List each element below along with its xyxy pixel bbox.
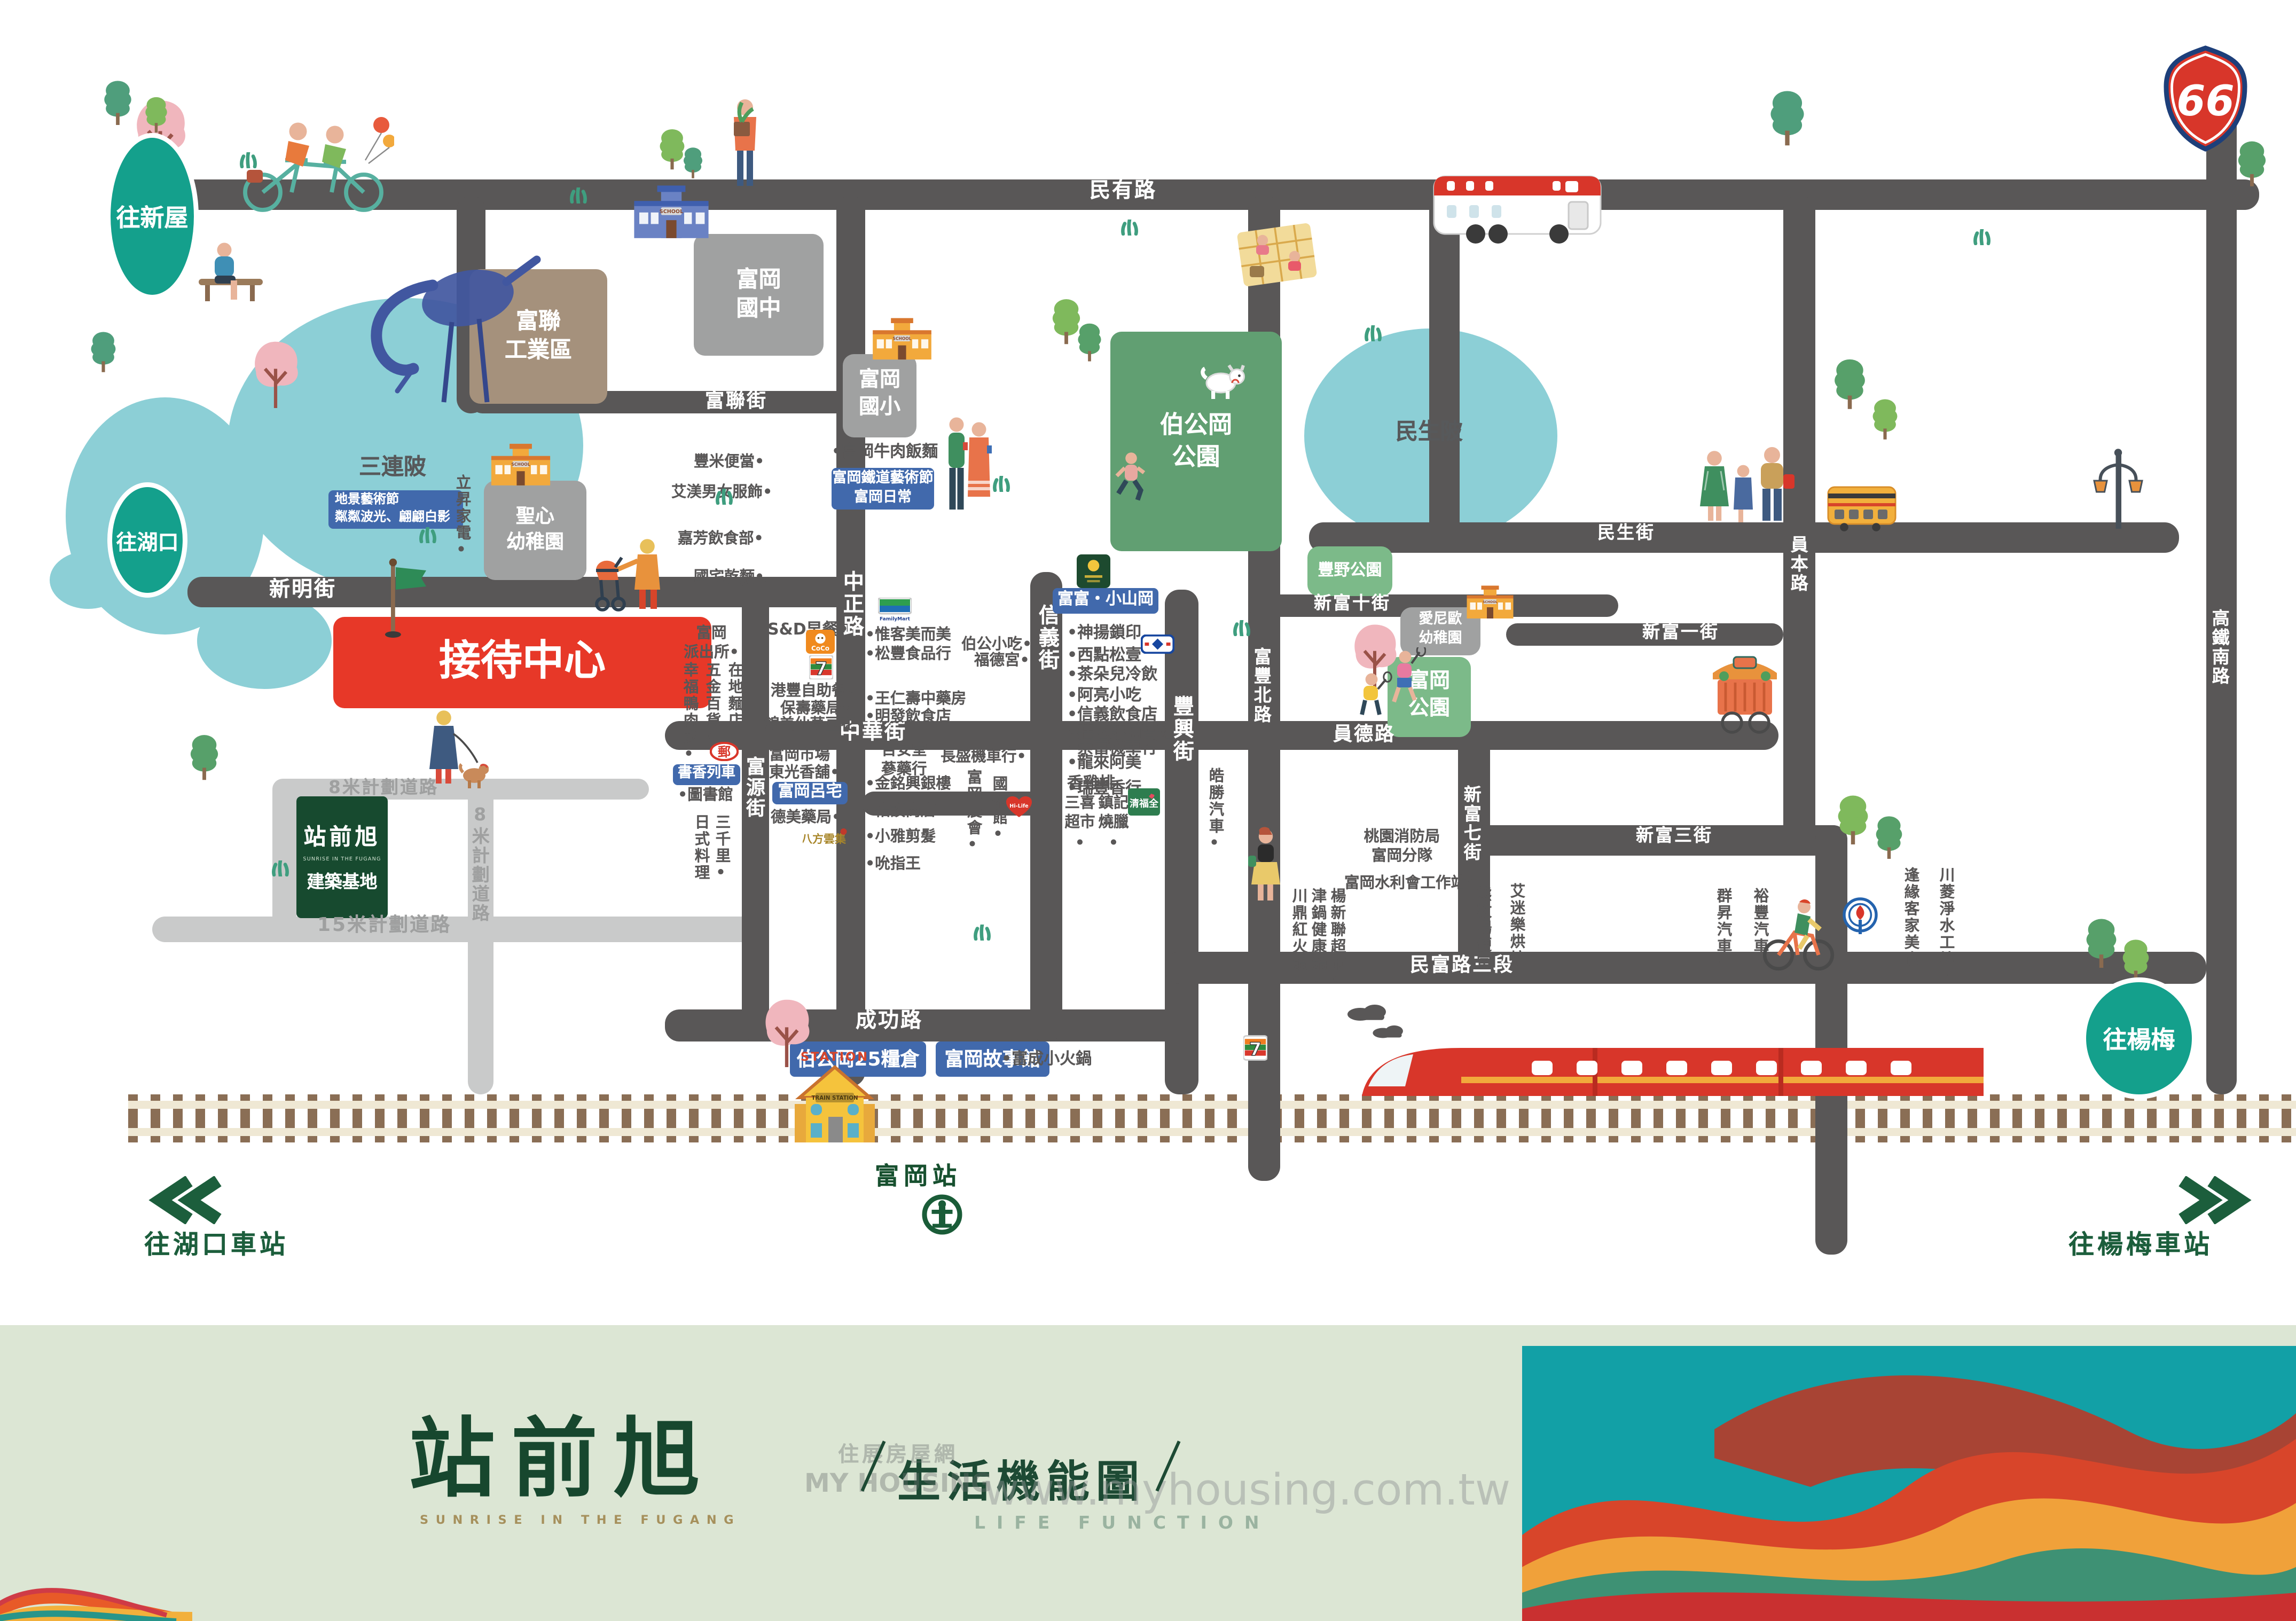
- shop-label: 富岡市場: [769, 747, 830, 766]
- station-building-icon: STATIONTRAIN STATION: [795, 1046, 875, 1149]
- road-gaotienan-rd: [2206, 66, 2237, 1094]
- shop-label: •王仁壽中藥房: [865, 691, 966, 710]
- road-zhongzheng-rd: [836, 195, 865, 1086]
- bench-person-icon: [189, 237, 269, 304]
- picnic-blanket-icon: [1234, 218, 1320, 292]
- area-bogong-park: 伯公岡 公園: [1110, 332, 1282, 551]
- road-minyou-rd: [136, 179, 2259, 210]
- shop-label: 桃園消防局 富岡分隊: [1347, 828, 1456, 868]
- shop-label: 富岡 派出所•: [679, 625, 743, 664]
- school-icon: SCHOOL: [1466, 582, 1514, 620]
- watermark-url: www.myhousing.com.tw: [984, 1466, 1510, 1516]
- area-fugang-junior-high: 富岡 國中: [694, 234, 824, 356]
- grass-tuft-icon: [992, 476, 1011, 492]
- road-label: 新富一街: [1642, 623, 1719, 643]
- hilife-logo: Hi-Life: [1005, 795, 1033, 819]
- grass-tuft-icon: [239, 152, 258, 168]
- shop-label: 群昇汽車•: [1711, 888, 1731, 974]
- road-label: 新富三街: [1636, 827, 1713, 846]
- road-label: 15米計劃道路: [317, 915, 451, 936]
- map-label: 往楊梅車站: [2068, 1231, 2213, 1259]
- watermark-en: MY HOUSING: [804, 1468, 992, 1498]
- road-label: 員德路: [1333, 724, 1396, 746]
- road-label: 員本路: [1788, 535, 1807, 593]
- svg-text:STATION: STATION: [801, 1050, 869, 1064]
- tree-icon: [2237, 130, 2267, 197]
- bafang-logo: 八方雲集: [803, 825, 848, 851]
- shop-label: •金銘興銀樓: [865, 776, 951, 795]
- site-type: 建築基地: [307, 868, 378, 894]
- school-icon: SCHOOL: [633, 179, 710, 240]
- tree-icon: [1769, 90, 1806, 146]
- shop-label: 立昇家電•: [450, 474, 470, 561]
- shop-label: 三喜 超市•: [1062, 795, 1098, 854]
- map-label: 富岡站: [875, 1163, 961, 1190]
- jogger-icon: [1112, 452, 1147, 503]
- tree-icon: [1077, 322, 1102, 362]
- tram-icon: [1825, 484, 1899, 532]
- road-label: 民富路三段: [1410, 955, 1514, 976]
- banner-brand-sub: SUNRISE IN THE FUGANG: [420, 1513, 741, 1527]
- site-sub: SUNRISE IN THE FUGANG: [303, 856, 381, 862]
- shop-label: 國宅乾麵•: [694, 569, 764, 589]
- road-fengxing-st: [1165, 590, 1198, 1094]
- plant-shopper-icon: [724, 96, 763, 192]
- chevrons-right-icon: [2163, 1176, 2256, 1224]
- shop-label: 艾迷樂烘焙•: [1504, 883, 1524, 986]
- familymart-logo: FamilyMart: [878, 598, 912, 622]
- grass-tuft-icon: [1972, 229, 1992, 245]
- road-plan-15m: [152, 917, 758, 942]
- shop-label: 長盛機車行•: [941, 748, 1026, 768]
- banner-wave-graphic: [1522, 1346, 2296, 1621]
- shop-label: 逢緣客家美食•: [1899, 867, 1918, 987]
- shop-label: 港豐自助餐•: [771, 683, 857, 702]
- shop-label: 在地麵店•: [723, 662, 742, 748]
- grass-tuft-icon: [1232, 620, 1251, 636]
- post-office-logo: 郵: [710, 742, 739, 761]
- map-stage: 站前旭 SUNRISE IN THE FUGANG 建築基地 站前旭 SUNRI…: [0, 0, 2296, 1621]
- couple-drinks-icon: [942, 413, 993, 519]
- shop-label: 川鼎紅火鍋•: [1287, 888, 1306, 991]
- water-corp-logo: [1843, 896, 1878, 941]
- svg-text:清福全: 清福全: [1130, 798, 1159, 810]
- map-label: 往湖口車站: [144, 1231, 288, 1259]
- shop-label: •阿亮小吃: [1067, 686, 1141, 707]
- shop-label: 楊新聯超市•: [1325, 888, 1345, 991]
- site-box: 站前旭 SUNRISE IN THE FUGANG 建築基地: [296, 796, 388, 918]
- shop-label: •小雅剪髮: [865, 828, 936, 848]
- shop-label: 幸福鴨肉飯•: [678, 662, 698, 765]
- tree-icon: [1871, 396, 1899, 442]
- info-badge: 書香列車: [673, 764, 740, 785]
- info-badge: 富富・小山岡: [1053, 588, 1158, 614]
- road-label: 成功路: [856, 1011, 923, 1034]
- shop-label: •茶朵兒冷飲: [1067, 665, 1157, 686]
- railway-rail-bottom: [128, 1128, 2296, 1136]
- tree-icon: [144, 96, 168, 133]
- shopper-icon: [1245, 827, 1287, 904]
- direction-circle: 往新屋: [106, 133, 199, 300]
- shop-label: 皓勝汽車•: [1203, 768, 1223, 854]
- coco-logo: CoCo: [806, 630, 835, 654]
- shop-label: •神揚鎖印: [1067, 623, 1141, 644]
- svg-text:CoCo: CoCo: [811, 645, 829, 652]
- shop-label: 熊牧場便當•: [1471, 886, 1491, 990]
- cyclist-icon: [1759, 894, 1836, 971]
- road-minshengpi-v: [1429, 195, 1460, 553]
- qingfu-logo: 清福全: [1128, 788, 1160, 816]
- shop-label: •圖書館: [678, 787, 733, 806]
- grass-tuft-icon: [715, 489, 734, 505]
- pink-tree-icon: [250, 338, 301, 409]
- road-label: 新富十街: [1314, 594, 1391, 614]
- tree-icon: [1875, 816, 1903, 859]
- info-badge: 富岡鐵道藝術節 富岡日常: [832, 468, 934, 510]
- seven-eleven-logo: 7: [809, 655, 833, 679]
- shop-label: •惟客美而美: [865, 627, 951, 646]
- site-name: 站前旭: [304, 820, 381, 852]
- shop-label: 嘉芳飲食部•: [678, 530, 764, 550]
- area-shengxin-kindergarten: 聖心 幼稚園: [484, 481, 586, 580]
- seven-eleven-logo: 7: [1243, 1035, 1267, 1061]
- shop-label: 豐米便當•: [694, 453, 764, 473]
- tree-icon: [189, 734, 220, 780]
- shop-label: 鎮記 燒臘•: [1096, 795, 1131, 854]
- road-label: 新富七街: [1461, 785, 1480, 862]
- svg-text:郵: 郵: [718, 745, 731, 759]
- grass-tuft-icon: [1120, 220, 1139, 236]
- tree-icon: [1836, 795, 1870, 844]
- road-label: 富豐北路: [1251, 647, 1271, 724]
- grass-tuft-icon: [418, 527, 437, 543]
- area-fengye-park: 豐野公園: [1307, 546, 1392, 596]
- road-label: 信義街: [1033, 604, 1056, 671]
- crane-sculpture-icon: [336, 234, 542, 417]
- info-badge: 富岡呂宅: [772, 782, 848, 804]
- shop-label: 東光香舖•: [769, 764, 840, 784]
- shop-label: •佑讚商店: [865, 803, 936, 823]
- cloud-icon: [1346, 1003, 1391, 1021]
- dog-walker-icon: [421, 708, 489, 792]
- area-fugang-elementary: 富岡 國小: [843, 354, 916, 437]
- road-label: 高鐵南路: [2209, 609, 2229, 686]
- fufu-logo: [1077, 554, 1110, 588]
- school-icon: SCHOOL: [490, 439, 551, 487]
- shop-label: 五金百貨•: [700, 662, 720, 748]
- shop-label: •吮指王: [865, 856, 921, 875]
- road-label: 富聯街: [705, 391, 767, 412]
- shop-label: 日式料理: [689, 814, 709, 881]
- tree-icon: [1833, 356, 1867, 412]
- road-label: 民生街: [1597, 524, 1655, 543]
- shop-label: •明發飲食店: [865, 708, 951, 728]
- map-label: 三連陂: [359, 457, 426, 481]
- svg-text:SCHOOL: SCHOOL: [511, 462, 530, 467]
- badminton-players-icon: [1355, 647, 1426, 721]
- road-label: 民有路: [1090, 181, 1157, 204]
- tree-icon: [90, 330, 117, 373]
- shop-label: 國術館•: [987, 776, 1007, 845]
- grass-tuft-icon: [569, 187, 588, 203]
- family-group-icon: [1695, 445, 1795, 532]
- road-label: 富源街: [743, 756, 765, 819]
- road-label: 8米計劃道路: [469, 804, 489, 923]
- flag-icon: [381, 558, 429, 638]
- street-lamp-icon: [2089, 445, 2147, 532]
- pxmart-logo: [1141, 635, 1174, 654]
- svg-text:SCHOOL: SCHOOL: [1483, 600, 1498, 604]
- school-icon: SCHOOL: [872, 314, 932, 361]
- grass-tuft-icon: [973, 925, 992, 941]
- direction-circle: 往楊梅: [2081, 977, 2197, 1099]
- shop-label: •富岡牛肉飯麵: [832, 442, 938, 463]
- svg-text:八方雲集: 八方雲集: [803, 833, 847, 845]
- shop-label: 福德宮•: [974, 652, 1030, 672]
- stroller-woman-icon: [590, 535, 673, 615]
- bus-icon: [1428, 167, 1610, 247]
- svg-text:7: 7: [1249, 1039, 1261, 1060]
- shop-label: 錦美仙草豆花•: [764, 716, 865, 736]
- info-badge: 地景藝術節 粼粼波光、翩翩白影: [328, 490, 463, 529]
- road-label: 新明街: [269, 580, 336, 603]
- shop-label: 川菱淨水工坊•: [1934, 867, 1954, 987]
- svg-text:Hi-Life: Hi-Life: [1009, 803, 1029, 809]
- svg-text:TRAIN STATION: TRAIN STATION: [811, 1095, 858, 1101]
- svg-text:FamilyMart: FamilyMart: [880, 617, 911, 622]
- shop-label: •富成小火鍋: [1001, 1050, 1092, 1070]
- banner-brand: 站前旭: [409, 1388, 716, 1514]
- chevrons-left-icon: [144, 1176, 237, 1224]
- shop-label: 富岡水利會工作站•: [1344, 875, 1476, 895]
- svg-text:7: 7: [815, 659, 827, 679]
- tandem-bicycle-icon: [237, 112, 394, 215]
- banner-ribbon-left: [0, 1500, 192, 1621]
- shop-label: •西點松壹: [1067, 646, 1141, 667]
- direction-circle: 往湖口: [107, 482, 187, 598]
- white-dog-icon: [1198, 362, 1247, 401]
- tree-icon: [2121, 939, 2150, 982]
- tree-icon: [103, 80, 133, 125]
- watermark-logo: 住展房屋網 MY HOUSING: [804, 1437, 992, 1498]
- tree-icon: [659, 128, 686, 170]
- svg-text:SCHOOL: SCHOOL: [660, 209, 683, 215]
- watermark-cn: 住展房屋網: [804, 1437, 992, 1468]
- hsr-train-icon: [1352, 1035, 1990, 1102]
- svg-text:SCHOOL: SCHOOL: [893, 336, 912, 341]
- shop-label: 津鍋健康鍋•: [1306, 888, 1326, 991]
- flower-cart-icon: [1708, 647, 1782, 734]
- grass-tuft-icon: [271, 860, 290, 876]
- tree-icon: [2085, 918, 2118, 968]
- svg-text:66: 66: [2176, 77, 2235, 126]
- shop-label: •松豐食品行: [865, 646, 951, 665]
- grass-tuft-icon: [1364, 325, 1383, 341]
- tra-logo: [921, 1192, 963, 1240]
- bottom-banner: 站前旭 SUNRISE IN THE FUGANG 生活機能圖 LIFE FUN…: [0, 1325, 2296, 1621]
- tree-icon: [683, 146, 703, 179]
- shop-label: 三千里•: [710, 814, 730, 884]
- map-label: 民生陂: [1396, 421, 1463, 446]
- shop-label: 富岡農會•: [961, 769, 981, 856]
- lake: [197, 593, 332, 689]
